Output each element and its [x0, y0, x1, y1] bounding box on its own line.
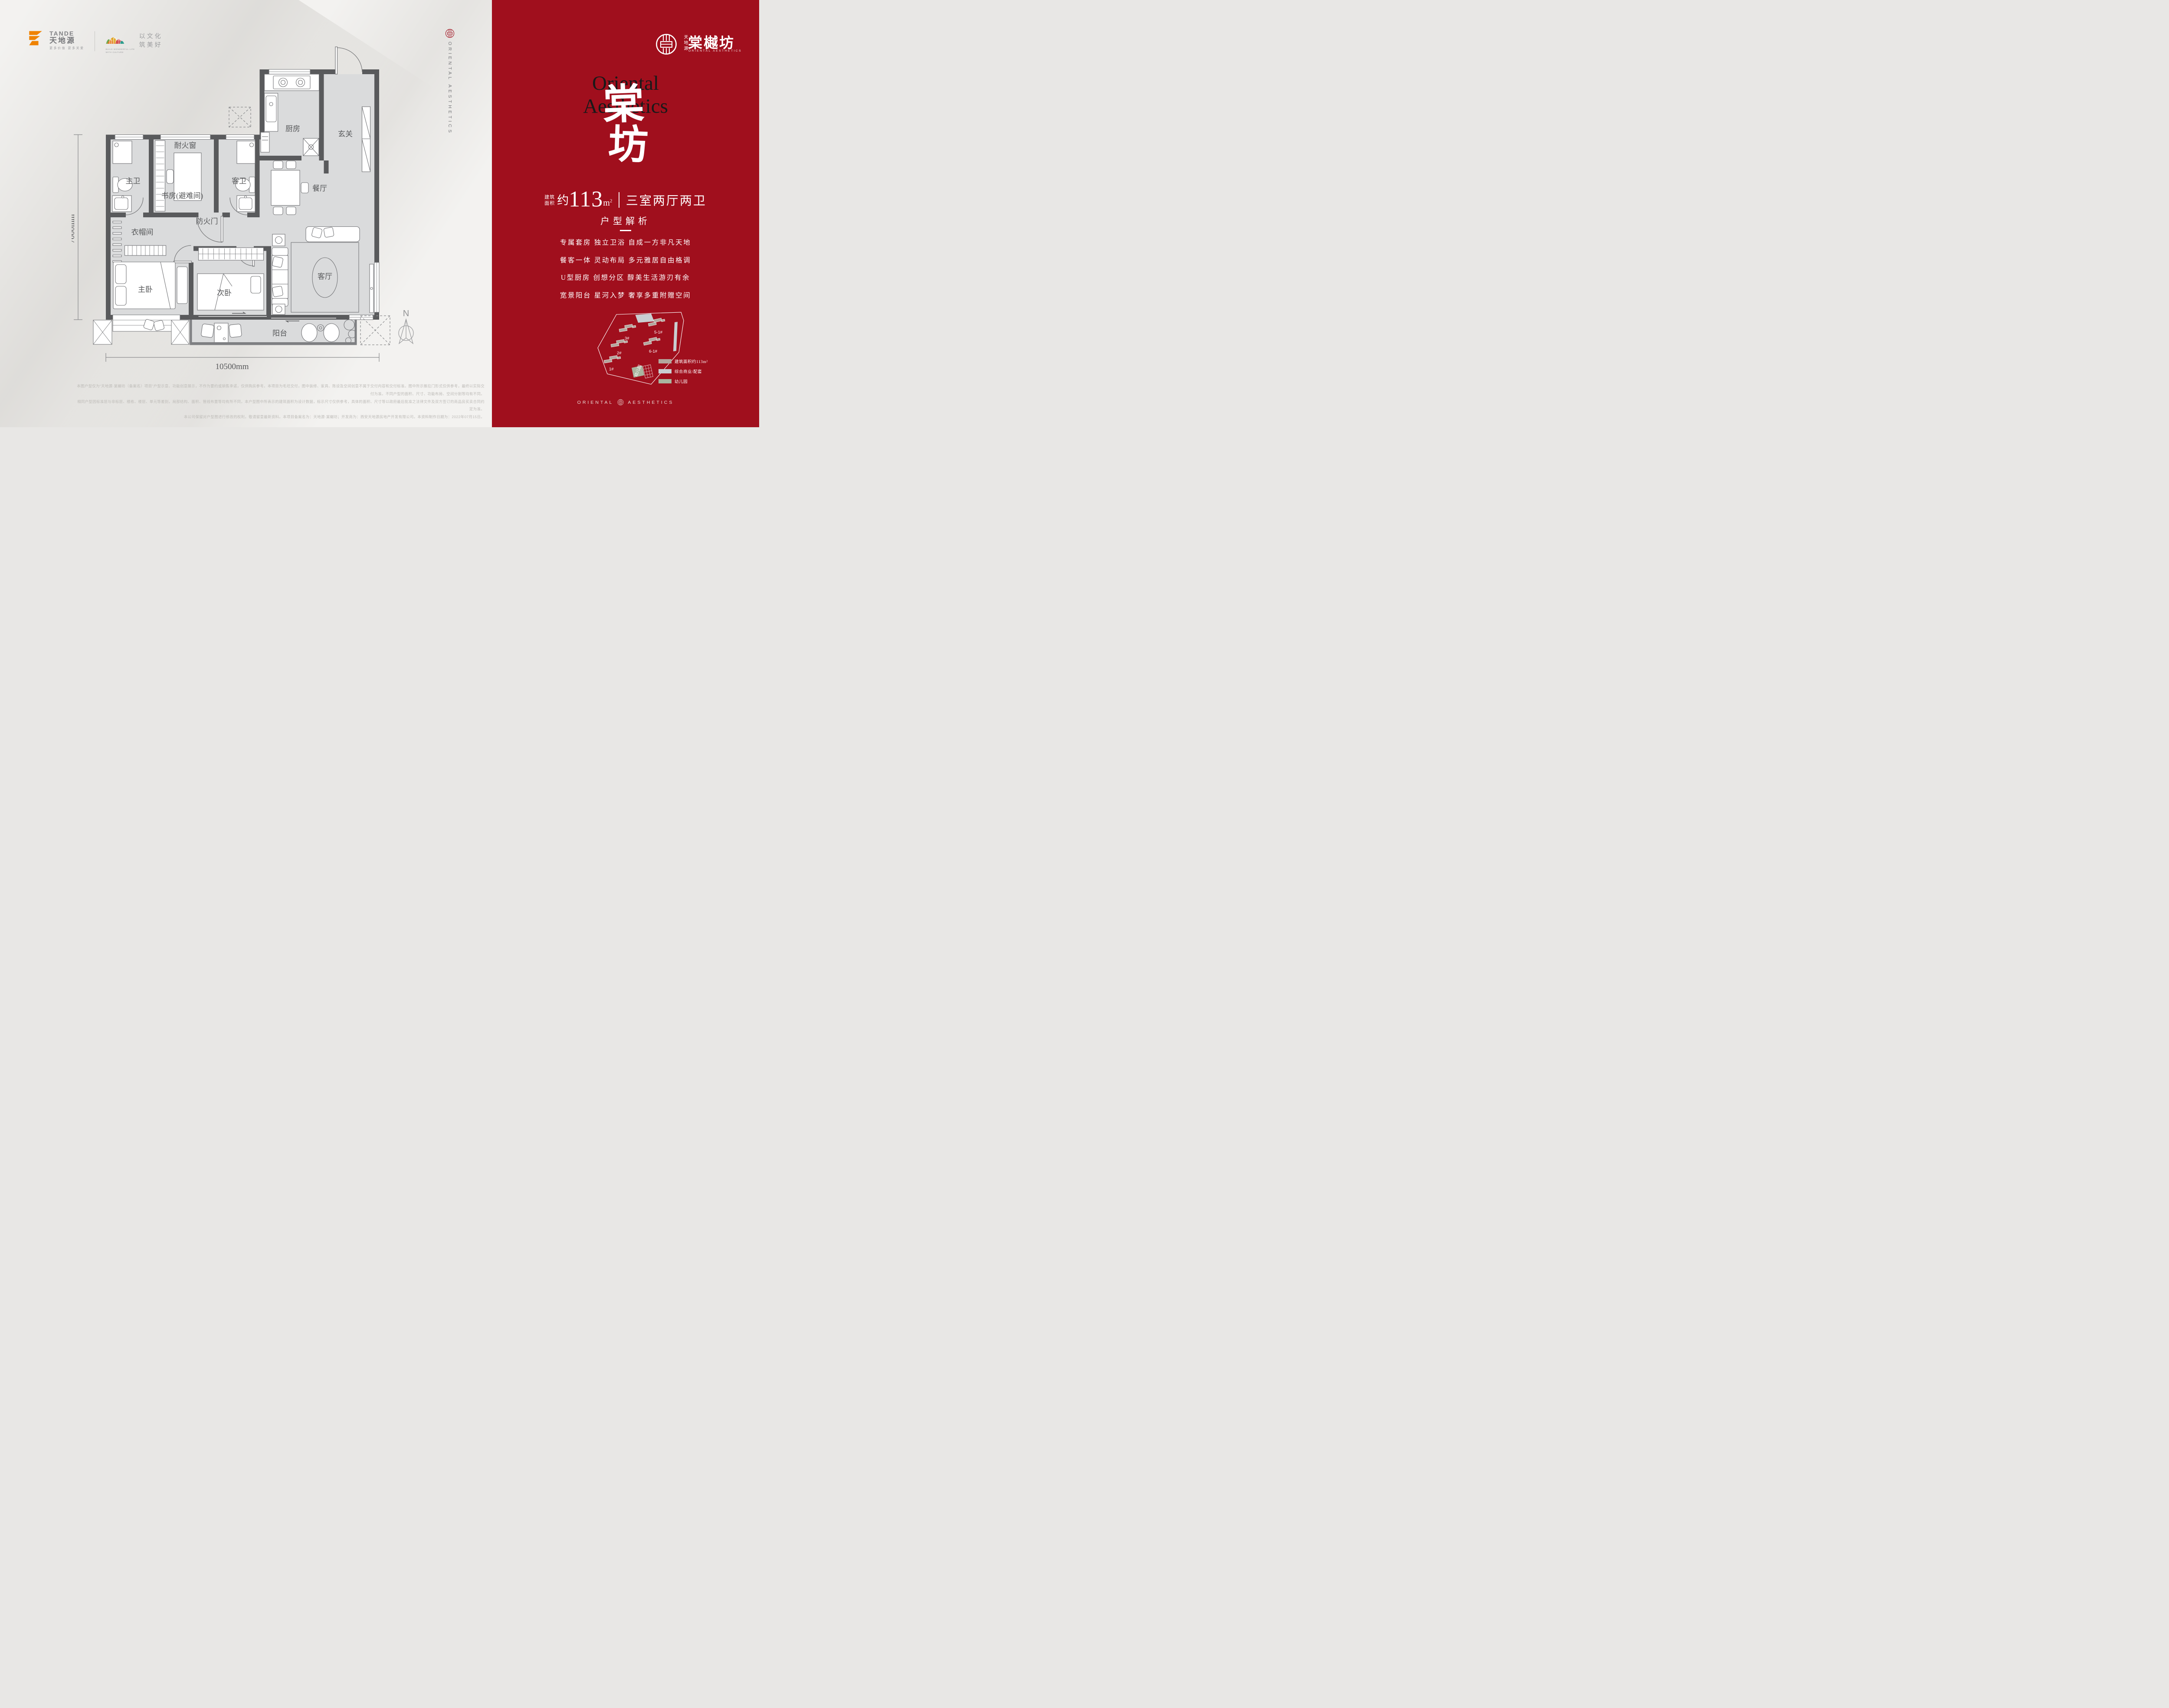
panel-logo-cn-small: 天地源 — [682, 35, 688, 52]
footer-lattice-emblem-icon — [617, 399, 624, 406]
map-label: 5-1# — [654, 330, 663, 335]
legend-row: 综合商业/配套 — [659, 368, 708, 374]
tande-logo-icon — [28, 30, 43, 46]
disclaimer-line: 本公司保留对户型图进行修改的权利，敬请留意最新资料。本项目备案名为：天地源·棠樾… — [76, 413, 485, 421]
room-count-label: 三室两厅两卫 — [626, 191, 707, 210]
feature-line: 餐客一体 灵动布局 多元雅居自由格调 — [492, 252, 759, 270]
map-label: 1# — [609, 367, 614, 372]
map-label: 客卫 — [232, 177, 246, 185]
area-approx: 约 — [557, 191, 569, 210]
vertical-brand-text: ORIENTAL AESTHETICS — [447, 42, 452, 135]
commercial-strip — [673, 322, 678, 351]
map-label: 书房(避难间) — [161, 192, 203, 200]
area-separator — [619, 192, 619, 208]
dim-height-label: 7000mm — [72, 214, 76, 244]
panel-logo-name: 棠樾坊 — [688, 31, 735, 52]
feature-line: 宽景阳台 星河入梦 奢享多重附赠空间 — [492, 287, 759, 305]
footer-brand-right: AESTHETICS — [628, 400, 674, 405]
map-label: 防火门 — [196, 217, 218, 226]
siteplan-legend: 建筑面积约113m²综合商业/配套幼儿园 — [659, 358, 708, 384]
map-label: 6-1# — [649, 349, 658, 354]
legend-label: 幼儿园 — [675, 378, 688, 384]
area-prefix-1: 建筑 — [544, 195, 555, 200]
map-label: 阳台 — [272, 329, 287, 337]
area-unit-m: m — [603, 198, 610, 208]
map-label: 客厅 — [318, 272, 332, 281]
area-prefix: 建筑 面积 — [544, 195, 555, 209]
panel-logo-en: ORIENTAL AESTHETICS — [688, 49, 742, 52]
section-dash — [620, 230, 631, 231]
panel-lattice-emblem-icon — [655, 33, 678, 56]
legend-swatch — [659, 359, 672, 363]
tande-en: TANDE — [49, 30, 84, 37]
map-label: 厨房 — [285, 125, 300, 133]
area-unit-sup: 2 — [610, 198, 613, 203]
section-title: 户型解析 — [492, 214, 759, 227]
area-value: 113 — [569, 189, 603, 210]
area-prefix-2: 面积 — [544, 201, 555, 206]
legend-label: 综合商业/配套 — [675, 368, 702, 374]
marketing-panel: 天地源 棠樾坊 ORIENTAL AESTHETICS Oriental Aes… — [492, 0, 759, 427]
vertical-brand-strip: ORIENTAL AESTHETICS — [443, 29, 456, 135]
map-label: 耐火窗 — [174, 141, 197, 150]
feature-line: 专属套房 独立卫浴 自成一方非凡天地 — [492, 234, 759, 252]
footer-brand-left: ORIENTAL — [577, 400, 614, 405]
area-spec-row: 建筑 面积 约 113 m2 三室两厅两卫 — [492, 189, 759, 210]
legend-row: 幼儿园 — [659, 378, 708, 384]
map-label: 主卫 — [126, 177, 141, 185]
commercial-block — [636, 314, 655, 323]
legend-swatch — [659, 379, 672, 383]
area-unit: m2 — [603, 198, 612, 210]
disclaimer-line: 相同户型因标准层与非标层、楼栋、楼层、单元等差别，局部结构、面积、管线布置等均有… — [76, 398, 485, 414]
map-label: 衣帽间 — [131, 228, 154, 236]
poster-page: TANDE 天地源 更多价值 更多关爱 — [0, 0, 759, 427]
calligraphy-char-2: 坊 — [607, 124, 649, 165]
north-arrow: N — [399, 309, 413, 344]
disclaimer-text: 本图户型仅为“天地源·棠樾坊（备案名）项目”户型示意、功能创意展示，不作为要约或… — [76, 383, 485, 421]
floorplan-drawing: 7000mm 10500mm N 厨房玄关餐厅耐火窗主卫客卫书房(避难间)防火门… — [72, 39, 419, 386]
map-label: 3# — [625, 336, 629, 341]
residential-buildings — [603, 317, 665, 363]
lattice-emblem-icon — [445, 29, 455, 38]
dim-width-label: 10500mm — [215, 362, 249, 371]
legend-row: 建筑面积约113m² — [659, 358, 708, 364]
map-label: 餐厅 — [312, 184, 327, 193]
legend-swatch — [659, 369, 672, 373]
legend-label: 建筑面积约113m² — [675, 358, 708, 364]
panel-footer-brand: ORIENTAL AESTHETICS — [492, 399, 759, 406]
map-label: 次卧 — [217, 289, 232, 297]
panel-title: Oriental Aesthetics 棠 坊 — [492, 72, 759, 118]
feature-list: 专属套房 独立卫浴 自成一方非凡天地餐客一体 灵动布局 多元雅居自由格调U型厨房… — [492, 234, 759, 304]
feature-line: U型厨房 创想分区 醇美生活游刃有余 — [492, 269, 759, 287]
map-label: 2# — [617, 351, 622, 356]
map-label: 玄关 — [338, 130, 353, 138]
disclaimer-line: 本图户型仅为“天地源·棠樾坊（备案名）项目”户型示意、功能创意展示，不作为要约或… — [76, 383, 485, 398]
map-label: 主卧 — [138, 285, 153, 294]
calligraphy-char-1: 棠 — [602, 83, 645, 126]
siteplan-labels: 3#5-1#2#6-1#1#幼儿园 — [609, 330, 663, 377]
north-label: N — [403, 309, 409, 318]
